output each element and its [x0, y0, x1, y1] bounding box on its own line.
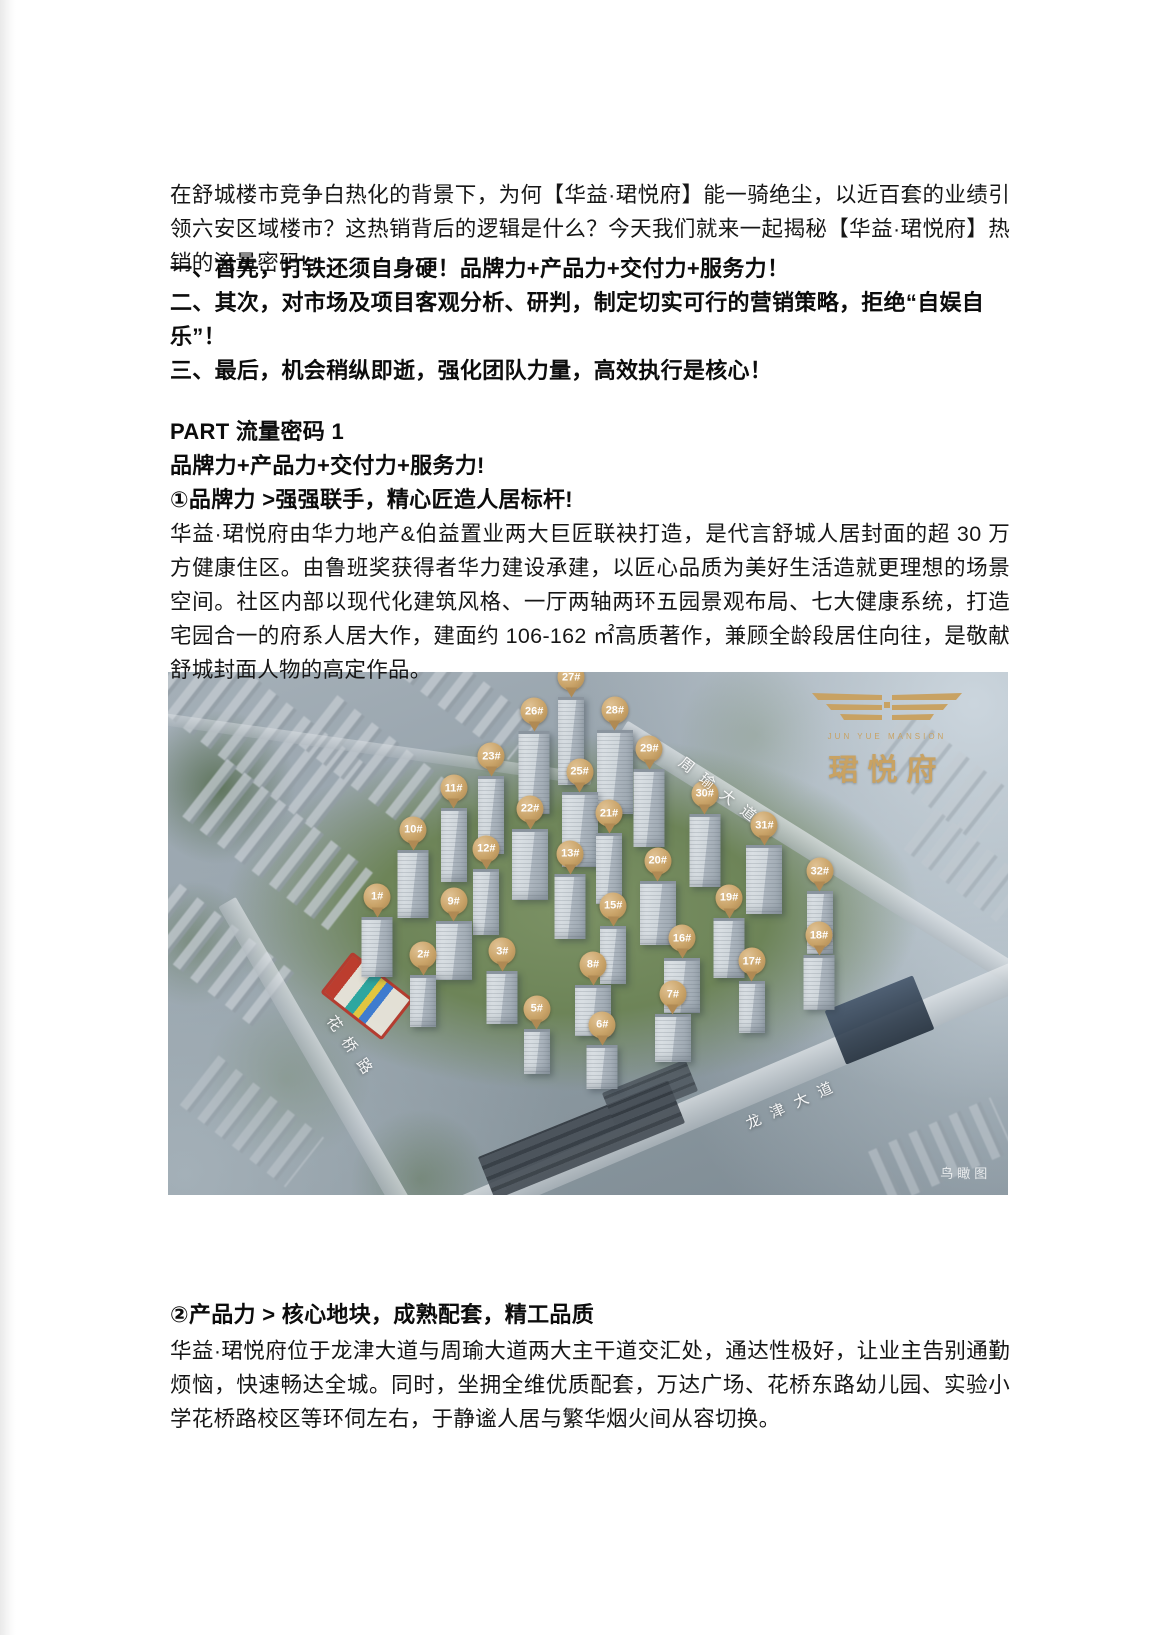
marker-balloon: 20# — [644, 847, 671, 874]
birdview-watermark: 鸟瞰图 — [940, 1163, 991, 1182]
marker-balloon: 10# — [400, 816, 427, 843]
background-buildings — [180, 1056, 325, 1188]
aerial-masterplan-image: JUN YUE MANSION 珺悦府 鸟瞰图 27#26#28#23#29#2… — [168, 672, 1008, 1195]
marker-balloon: 8# — [580, 951, 607, 978]
building-17 — [739, 981, 765, 1033]
section2-heading: ②产品力 > 核心地块，成熟配套，精工品质 — [170, 1298, 1010, 1332]
section1-heading: ①品牌力 >强强联手，精心匠造人居标杆! — [170, 483, 1010, 517]
building-marker-7: 7# — [659, 981, 686, 1018]
building-31 — [746, 845, 782, 914]
marker-balloon: 28# — [601, 697, 628, 724]
building-marker-10: 10# — [400, 816, 427, 853]
building-marker-20: 20# — [644, 847, 671, 884]
building-9 — [436, 921, 472, 980]
marker-balloon: 13# — [557, 840, 584, 867]
marker-balloon: 11# — [440, 775, 467, 802]
marker-balloon: 9# — [440, 888, 467, 915]
building-22 — [512, 829, 548, 900]
project-logo: JUN YUE MANSION 珺悦府 — [787, 690, 987, 789]
building-marker-21: 21# — [596, 800, 623, 837]
building-marker-23: 23# — [478, 743, 505, 780]
key-points-list: 一、首先，打铁还须自身硬！品牌力+产品力+交付力+服务力！二、其次，对市场及项目… — [170, 252, 1010, 388]
building-marker-13: 13# — [557, 840, 584, 877]
section1-body: 华益·珺悦府由华力地产&伯益置业两大巨匠联袂打造，是代言舒城人居封面的超 30 … — [170, 517, 1010, 687]
building-7 — [655, 1014, 691, 1062]
marker-balloon: 15# — [600, 892, 627, 919]
marker-balloon: 6# — [589, 1011, 616, 1038]
marker-balloon: 1# — [364, 883, 391, 910]
building-29 — [634, 769, 665, 848]
marker-balloon: 3# — [489, 938, 516, 965]
building-marker-11: 11# — [440, 775, 467, 812]
part-heading: PART 流量密码 1 — [170, 415, 1010, 449]
marker-balloon: 2# — [410, 941, 437, 968]
logo-chinese-name: 珺悦府 — [787, 745, 987, 789]
building-marker-28: 28# — [601, 697, 628, 734]
building-5 — [524, 1029, 550, 1075]
building-2 — [410, 975, 436, 1028]
building-marker-8: 8# — [580, 951, 607, 988]
marker-balloon: 32# — [806, 858, 833, 885]
marker-balloon: 23# — [478, 743, 505, 770]
building-marker-6: 6# — [589, 1011, 616, 1048]
building-marker-1: 1# — [364, 883, 391, 920]
building-marker-15: 15# — [600, 892, 627, 929]
marker-balloon: 19# — [716, 884, 743, 911]
building-marker-5: 5# — [523, 995, 550, 1032]
building-18 — [804, 955, 835, 1010]
logo-english-name: JUN YUE MANSION — [787, 732, 987, 741]
marker-balloon: 25# — [566, 758, 593, 785]
marker-balloon: 22# — [517, 795, 544, 822]
building-30 — [689, 814, 720, 887]
building-marker-26: 26# — [521, 698, 548, 735]
building-marker-32: 32# — [806, 858, 833, 895]
building-marker-19: 19# — [716, 884, 743, 921]
building-10 — [398, 850, 429, 918]
building-marker-17: 17# — [738, 948, 765, 985]
building-1 — [362, 917, 393, 977]
marker-balloon: 29# — [636, 735, 663, 762]
building-11 — [441, 808, 467, 882]
building-marker-18: 18# — [806, 922, 833, 959]
office-building — [824, 975, 934, 1064]
logo-roof-icon — [802, 690, 972, 724]
part-subheading: 品牌力+产品力+交付力+服务力! — [170, 449, 1010, 483]
marker-balloon: 5# — [523, 995, 550, 1022]
building-marker-29: 29# — [636, 735, 663, 772]
building-3 — [487, 971, 518, 1024]
marker-balloon: 7# — [659, 981, 686, 1008]
building-marker-2: 2# — [410, 941, 437, 978]
marker-balloon: 26# — [521, 698, 548, 725]
key-point-1: 一、首先，打铁还须自身硬！品牌力+产品力+交付力+服务力！ — [170, 252, 1010, 286]
marker-balloon: 21# — [596, 800, 623, 827]
building-marker-3: 3# — [489, 938, 516, 975]
building-marker-9: 9# — [440, 888, 467, 925]
building-6 — [587, 1045, 618, 1089]
marker-balloon: 17# — [738, 948, 765, 975]
marker-balloon: 16# — [669, 925, 696, 952]
key-point-2: 二、其次，对市场及项目客观分析、研判，制定切实可行的营销策略，拒绝“自娱自乐”！ — [170, 286, 1010, 354]
marker-balloon: 12# — [473, 835, 500, 862]
building-marker-22: 22# — [517, 795, 544, 832]
building-13 — [555, 874, 586, 939]
key-point-3: 三、最后，机会稍纵即逝，强化团队力量，高效执行是核心！ — [170, 354, 1010, 388]
building-marker-16: 16# — [669, 925, 696, 962]
building-12 — [473, 869, 499, 935]
building-marker-25: 25# — [566, 758, 593, 795]
section2-body: 华益·珺悦府位于龙津大道与周瑜大道两大主干道交汇处，通达性极好，让业主告别通勤烦… — [170, 1334, 1010, 1436]
building-marker-12: 12# — [473, 835, 500, 872]
marker-balloon: 18# — [806, 922, 833, 949]
